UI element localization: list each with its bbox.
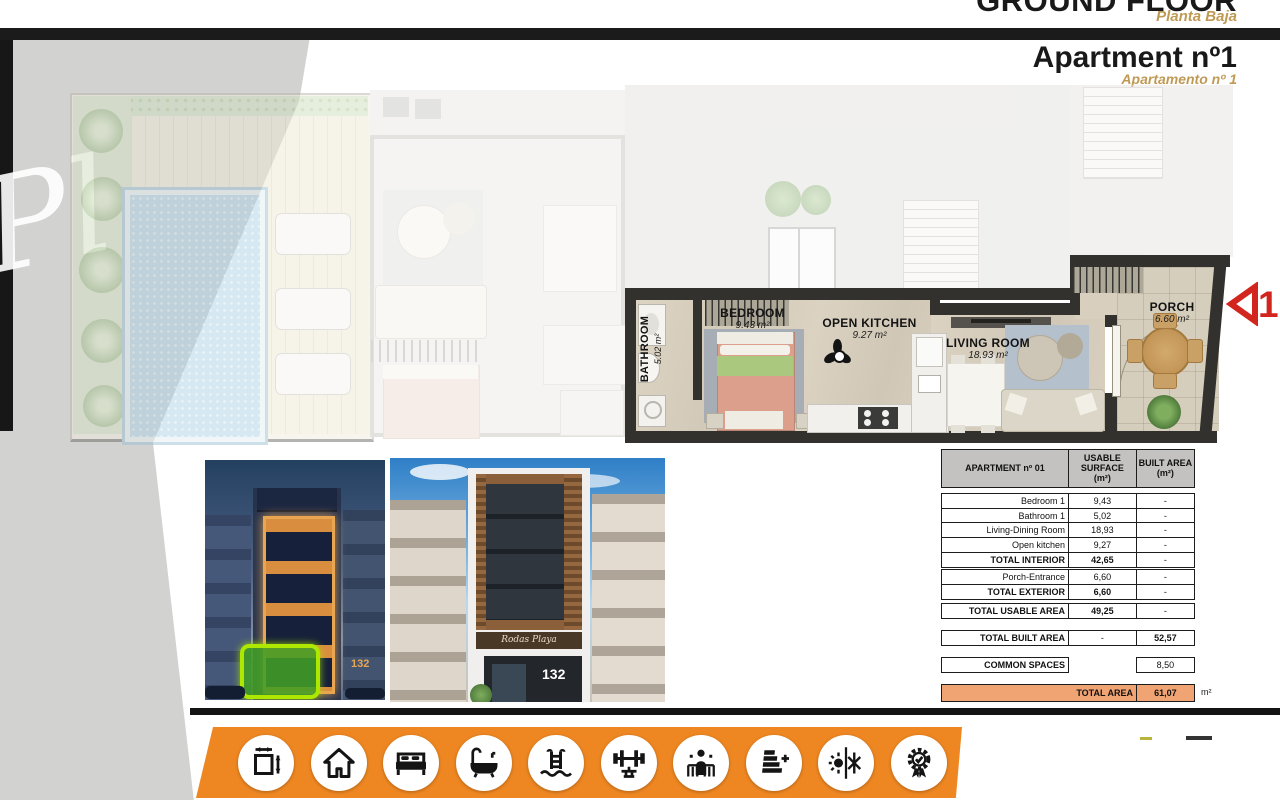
bed-pillows <box>720 345 790 355</box>
table-interior-section: Bedroom 19,43- Bathroom 15,02- Living-Di… <box>942 494 1195 568</box>
sun-lounger <box>275 353 351 395</box>
bathtub-icon <box>456 735 512 791</box>
wall-porch-bottom-seg <box>1105 393 1117 431</box>
spa-person-icon <box>673 735 729 791</box>
dining-chair <box>981 425 995 433</box>
neighbour-sofa <box>375 285 487 339</box>
neighbour-dining-table <box>543 205 617 292</box>
apartment-title: Apartment nº1 <box>1033 41 1237 75</box>
wall-joint <box>930 288 940 315</box>
street-number: 132 <box>351 658 369 670</box>
table-row: Open kitchen9,27- <box>942 538 1195 553</box>
building-render-day: Rodas Playa 132 <box>390 458 665 702</box>
header-divider-bar <box>0 28 1280 40</box>
porch-chair <box>1153 373 1177 389</box>
cooktop <box>858 407 898 429</box>
neighbour-bathroom <box>560 390 624 436</box>
living-room-label: LIVING ROOM 18.93 m² <box>941 337 1035 362</box>
table-row: TOTAL EXTERIOR6,60- <box>942 585 1195 600</box>
bedroom-icon <box>383 735 439 791</box>
table-row: Bedroom 19,43- <box>942 494 1195 509</box>
plant <box>801 185 831 215</box>
palm-tree <box>79 247 125 293</box>
day-center-building: Rodas Playa 132 <box>468 468 590 702</box>
bathroom-label: BATHROOM 5.02 m² <box>639 297 664 401</box>
day-side-building-left <box>390 500 466 702</box>
day-side-building-right <box>592 494 665 702</box>
building-render-night: 132 <box>205 460 385 700</box>
floor-dimensions-icon <box>238 735 294 791</box>
energy-rating-icon <box>746 735 802 791</box>
porch-plant <box>1147 395 1181 429</box>
page: Pl GROUND FLOOR Planta Baja Apartment nº… <box>0 0 1280 800</box>
entrance-arrow-icon <box>1224 282 1260 326</box>
palm-tree <box>79 109 123 153</box>
porch-chair <box>1127 339 1143 363</box>
area-table-header: APARTMENT nº 01 USABLE SURFACE(m²) BUILT… <box>942 450 1195 488</box>
entrance-marker-number: 1 <box>1258 284 1279 326</box>
parked-car <box>205 686 245 699</box>
table-row: Bathroom 15,02- <box>942 509 1195 524</box>
ac-unit <box>415 99 441 119</box>
entrance-glass <box>492 664 526 702</box>
table-header-apartment: APARTMENT nº 01 <box>941 449 1069 488</box>
palm-tree <box>81 319 125 363</box>
side-table <box>1057 333 1083 359</box>
entrance-closet <box>1073 267 1143 293</box>
ac-unit <box>383 97 409 117</box>
wall-left <box>625 288 636 443</box>
swimming-pool <box>125 190 265 442</box>
unit-highlight-box <box>240 644 320 699</box>
washing-machine-door <box>644 401 662 419</box>
street-number: 132 <box>542 666 565 682</box>
kitchen-sink <box>918 375 941 393</box>
stray-mark <box>1186 736 1212 740</box>
stray-mark <box>1140 737 1152 740</box>
table-exterior-section: Porch-Entrance6,60- TOTAL EXTERIOR6,60- <box>942 570 1195 600</box>
dining-table <box>947 363 1005 427</box>
neighbour-side-table <box>443 203 475 235</box>
climate-control-icon <box>818 735 874 791</box>
table-total-built-row: TOTAL BUILT AREA-52,57 <box>942 631 1195 646</box>
porch-door <box>1112 325 1121 397</box>
tv <box>971 319 1031 323</box>
night-side-building-right <box>343 510 385 700</box>
cloud <box>410 464 470 480</box>
floor-plan: BATHROOM 5.02 m² BEDROOM 9.43 m² OPEN KI… <box>65 85 1228 443</box>
table-row: Living-Dining Room18,93- <box>942 524 1195 539</box>
neighbour-kitchen-counter <box>543 325 627 385</box>
total-area-unit: m² <box>1201 687 1212 697</box>
wall-top-porch <box>1070 255 1230 267</box>
neighbour-bed-pillows <box>383 365 478 379</box>
porch-table <box>1141 327 1191 377</box>
table-total-area-row: TOTAL AREA 61,07 <box>942 685 1195 702</box>
table-header-built: BUILT AREA(m²) <box>1136 449 1195 488</box>
footer-divider-line <box>190 708 1280 715</box>
swimming-pool-icon <box>528 735 584 791</box>
dining-chair <box>951 425 965 433</box>
common-corridor <box>625 85 1075 290</box>
table-row: Porch-Entrance6,60- <box>942 570 1195 585</box>
wood-slats <box>564 474 582 630</box>
house-icon <box>311 735 367 791</box>
palm-tree <box>81 177 125 221</box>
page-title-es: Planta Baja <box>1156 8 1237 25</box>
bed-green-blanket <box>717 356 793 376</box>
porch-label: PORCH 6.60 m² <box>1133 301 1211 326</box>
table-header-usable: USABLE SURFACE(m²) <box>1068 449 1137 488</box>
kitchen-label: OPEN KITCHEN 9.27 m² <box>807 317 932 342</box>
parked-car <box>345 688 385 699</box>
bed-headboard <box>717 332 793 344</box>
nightstand <box>706 413 724 429</box>
bedroom-label: BEDROOM 9.43 m² <box>695 307 810 332</box>
quality-award-icon <box>891 735 947 791</box>
rooftop-pergola <box>257 488 337 512</box>
palm-tree <box>83 385 125 427</box>
entrance-plant <box>470 684 492 702</box>
gym-icon <box>601 735 657 791</box>
porch-chair <box>1187 339 1203 363</box>
wood-slats <box>476 474 486 630</box>
table-common-spaces-row: COMMON SPACES8,50 <box>942 658 1195 673</box>
table-row: TOTAL INTERIOR42,65- <box>942 553 1195 568</box>
neighbour-window-band <box>371 340 483 362</box>
wall-top-living <box>930 303 1080 315</box>
wall-top <box>625 288 1080 300</box>
table-total-usable-row: TOTAL USABLE AREA49,25- <box>942 604 1195 619</box>
amenities-bar <box>196 727 962 798</box>
staircase <box>903 200 979 292</box>
staircase-upper <box>1083 87 1163 179</box>
bed-foot-throw <box>725 411 783 429</box>
sun-lounger <box>275 213 351 255</box>
plant <box>765 181 801 217</box>
sun-lounger <box>275 288 351 330</box>
building-entrance: 132 <box>484 656 582 702</box>
building-sign: Rodas Playa <box>476 632 582 649</box>
